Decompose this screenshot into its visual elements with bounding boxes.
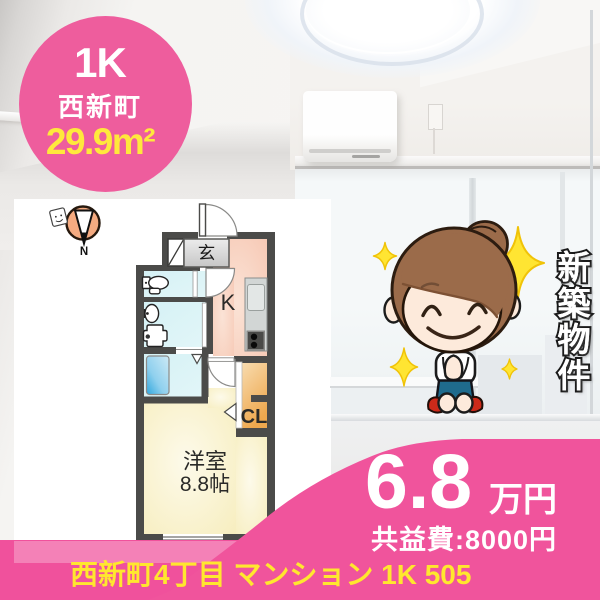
svg-text:K: K: [221, 290, 236, 315]
svg-text:N: N: [80, 246, 88, 258]
svg-text:CL: CL: [241, 406, 268, 428]
svg-text:玄: 玄: [198, 243, 216, 263]
